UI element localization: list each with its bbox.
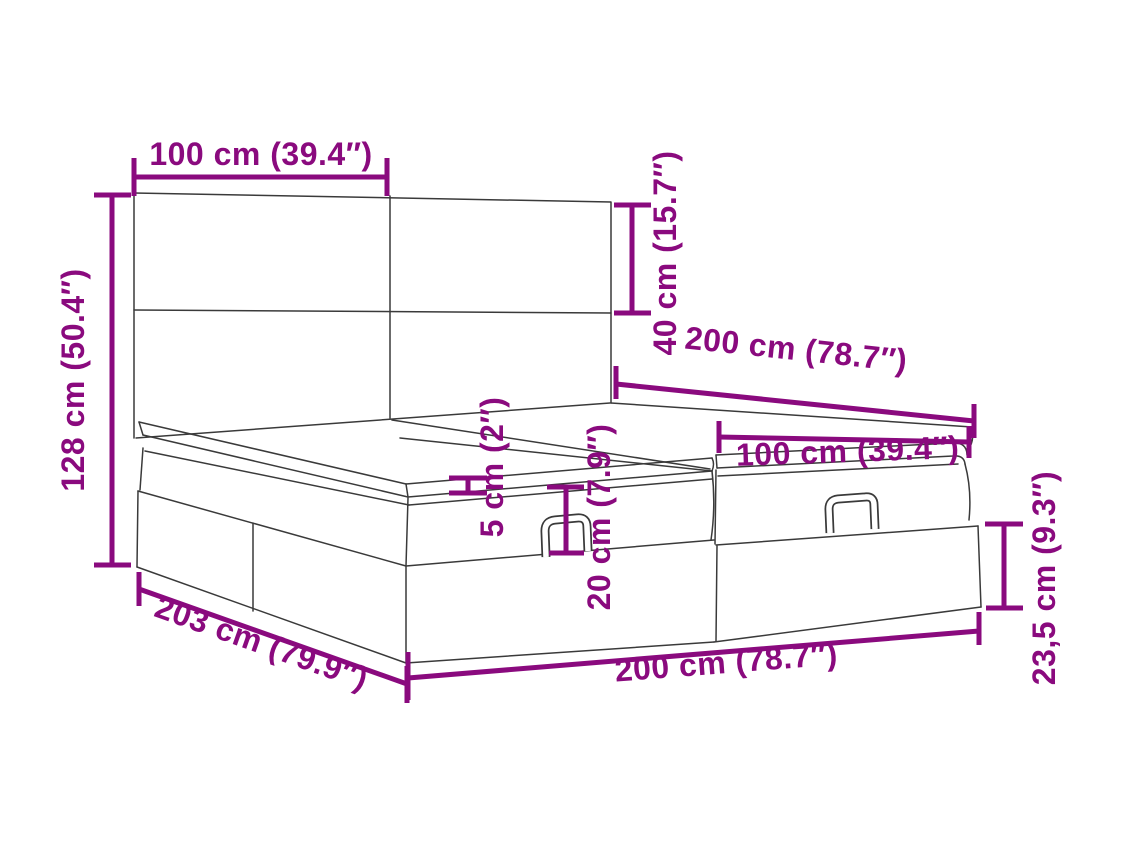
dim-label-bed-width-back: 200 cm (78.7″): [683, 319, 909, 378]
front-face-right-unit: [714, 443, 981, 642]
base-side-top-edge: [138, 491, 406, 566]
bed-line-art: [134, 193, 981, 663]
headboard: [134, 193, 611, 438]
dim-label-headboard-panel-width: 100 cm (39.4″): [149, 136, 372, 172]
topper-corner-edge: [406, 484, 408, 497]
dim-label-overall-height: 128 cm (50.4″): [55, 268, 91, 491]
surface-back-edge-left: [136, 403, 610, 438]
base-front-top-edge-right: [716, 526, 978, 545]
mattress-corner-edge: [406, 498, 408, 566]
headboard-outline: [134, 193, 611, 403]
topper-side-top-edge: [139, 422, 406, 484]
dim-headboard-panel-height: [614, 205, 651, 313]
headboard-horizontal-seam: [134, 310, 611, 313]
bed-dimension-diagram: 100 cm (39.4″) 128 cm (50.4″) 40 cm (15.…: [0, 0, 1130, 847]
mattress-right-edge-right-unit: [965, 464, 970, 520]
base-side-left-edge: [137, 491, 138, 567]
dim-base-height: [985, 524, 1023, 608]
diagram-canvas: 100 cm (39.4″) 128 cm (50.4″) 40 cm (15.…: [0, 0, 1130, 847]
topper-left-cap-right-unit: [716, 455, 717, 468]
topper-right-cap-left-unit: [712, 458, 714, 471]
dim-label-base-height: 23,5 cm (9.3″): [1026, 471, 1062, 685]
dim-label-headboard-panel-height: 40 cm (15.7″): [647, 150, 683, 355]
mattress-side-left-edge: [140, 448, 143, 490]
dim-label-mattress-height: 20 cm (7.9″): [581, 424, 617, 611]
dim-bed-width-back: [616, 366, 974, 438]
mattress-right-edge-left-unit: [711, 471, 714, 540]
topper-side-left-cap: [139, 422, 143, 435]
dim-label-overall-length: 203 cm (79.9″): [150, 588, 373, 696]
dim-overall-height: [94, 195, 131, 565]
dim-label-base-length: 200 cm (78.7″): [613, 636, 838, 689]
base-front-bottom-edge-right: [714, 607, 981, 642]
surface-center-seam-b: [400, 438, 712, 471]
mattress-left-edge-right-unit: [715, 470, 716, 544]
dim-label-topper-thickness: 5 cm (2″): [474, 397, 510, 538]
topper-side-bottom-edge: [143, 435, 408, 497]
base-right-edge: [978, 526, 981, 607]
front-left-corner: [406, 484, 408, 663]
handle-right: [829, 497, 875, 533]
base-front-seam: [716, 546, 717, 641]
mattress-side-top-edge: [145, 451, 409, 505]
